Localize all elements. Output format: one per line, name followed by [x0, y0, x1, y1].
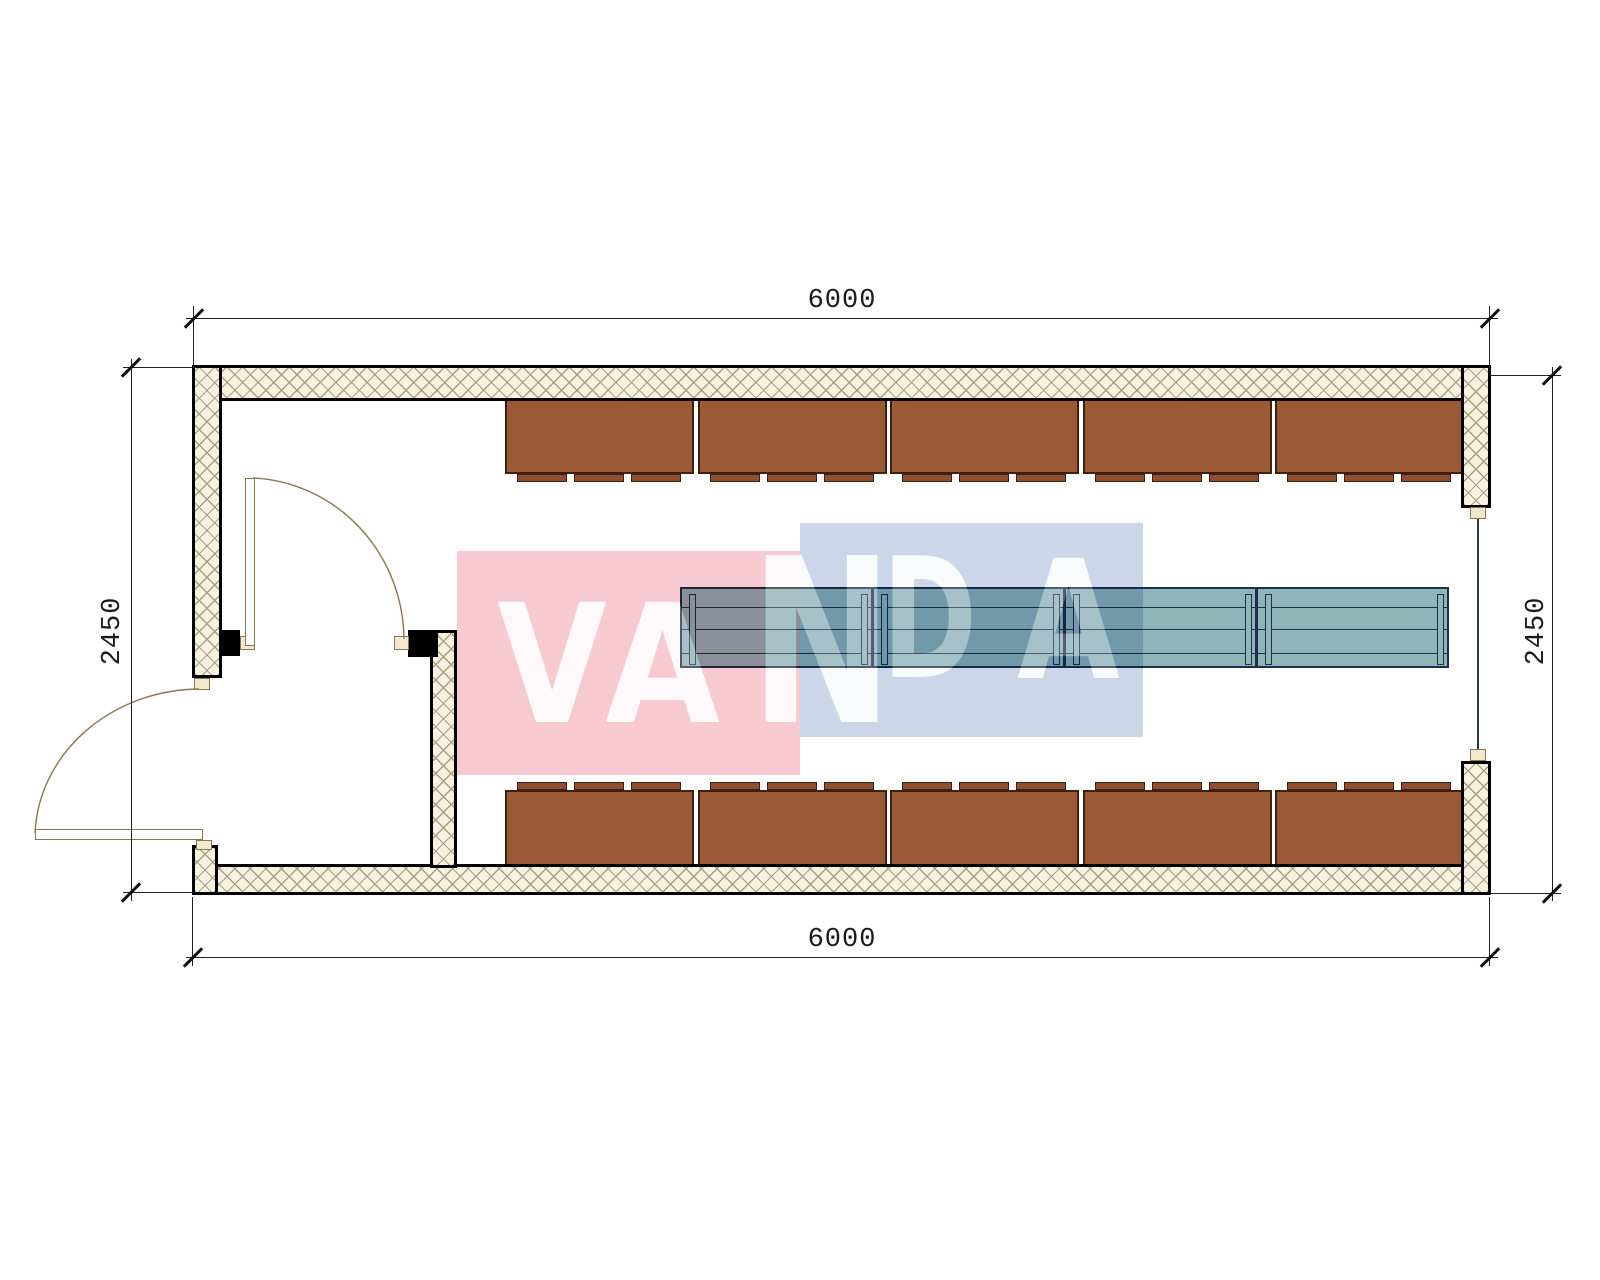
table-leg-slat	[1265, 594, 1272, 665]
table-plank-line	[1066, 629, 1255, 630]
cabinet-top-front	[824, 474, 874, 482]
floor-plan-canvas: V A N D A V A N D A 60	[0, 0, 1600, 1280]
table-plank-line	[1066, 607, 1255, 608]
table-leg-slat	[1053, 594, 1060, 665]
cabinet-bottom-front	[1152, 782, 1202, 790]
cabinet-bottom	[505, 790, 694, 868]
cabinet-top	[505, 399, 694, 474]
cabinet-bottom-front	[824, 782, 874, 790]
window-glazing-line	[1477, 519, 1479, 750]
dim-value-bottom: 6000	[780, 925, 904, 955]
table-plank-line	[874, 607, 1063, 608]
table-plank-line	[682, 629, 871, 630]
wall-partition	[430, 630, 457, 868]
cabinet-top-front	[959, 474, 1009, 482]
interior-door-leaf	[245, 478, 255, 646]
dim-line-top	[186, 318, 1498, 319]
cabinet-bottom-front	[1401, 782, 1451, 790]
cabinet-top-front	[517, 474, 567, 482]
cabinet-top-front	[710, 474, 760, 482]
cabinet-top-front	[1016, 474, 1066, 482]
cabinet-bottom-front	[517, 782, 567, 790]
cabinet-top	[698, 399, 887, 474]
wall-left-corner-block	[192, 845, 218, 895]
wall-top	[192, 365, 1491, 401]
dim-line-bottom	[186, 957, 1498, 958]
wall-bottom	[192, 864, 1491, 895]
table-leg-slat	[881, 594, 888, 665]
wall-partition-doorstop	[408, 630, 438, 657]
cabinet-bottom	[1083, 790, 1272, 868]
cabinet-top-front	[1287, 474, 1337, 482]
cabinet-bottom-front	[1095, 782, 1145, 790]
table-leg-slat	[1073, 594, 1080, 665]
cabinet-bottom-front	[1209, 782, 1259, 790]
cabinet-bottom-front	[1344, 782, 1394, 790]
cabinet-top-front	[1344, 474, 1394, 482]
entry-door-jamb-bottom	[196, 840, 212, 850]
cabinet-top-front	[1401, 474, 1451, 482]
cabinet-bottom-front	[1016, 782, 1066, 790]
wall-right-upper	[1461, 365, 1491, 508]
cabinet-bottom-front	[902, 782, 952, 790]
cabinet-bottom	[890, 790, 1079, 868]
dim-value-right: 2450	[1522, 569, 1552, 693]
table-plank-line	[682, 607, 871, 608]
cabinet-top-front	[631, 474, 681, 482]
cabinet-bottom-front	[959, 782, 1009, 790]
interior-door-jamb-strike	[394, 636, 409, 650]
cabinet-top-front	[1095, 474, 1145, 482]
cabinet-top	[1083, 399, 1272, 474]
dim-line-left	[131, 359, 132, 901]
table-plank-line	[874, 629, 1063, 630]
table-leg-slat	[689, 594, 696, 665]
table-plank-line	[874, 653, 1063, 654]
cabinet-top-front	[1152, 474, 1202, 482]
cabinet-top-front	[767, 474, 817, 482]
table-section	[1064, 587, 1257, 668]
wall-left-upper	[192, 365, 222, 678]
dim-ext-left-bottom	[123, 892, 196, 893]
cabinet-bottom-front	[767, 782, 817, 790]
table-section	[1256, 587, 1449, 668]
window-jamb-bottom	[1470, 749, 1486, 761]
entry-door-jamb-top	[194, 678, 210, 690]
cabinet-bottom-front	[631, 782, 681, 790]
table-leg-slat	[1245, 594, 1252, 665]
table-leg-slat	[1437, 594, 1444, 665]
cabinet-top-front	[574, 474, 624, 482]
table-plank-line	[682, 653, 871, 654]
window-jamb-top	[1470, 507, 1486, 519]
table-section	[872, 587, 1065, 668]
cabinet-top-front	[902, 474, 952, 482]
table-section	[680, 587, 873, 668]
cabinet-bottom-front	[574, 782, 624, 790]
dim-value-left: 2450	[98, 569, 128, 693]
cabinet-top	[890, 399, 1079, 474]
cabinet-bottom	[1275, 790, 1464, 868]
table-plank-line	[1066, 653, 1255, 654]
entry-door-leaf	[35, 829, 203, 840]
cabinet-bottom-front	[710, 782, 760, 790]
table-plank-line	[1258, 653, 1447, 654]
wall-right-lower	[1461, 761, 1491, 895]
table-leg-slat	[861, 594, 868, 665]
dim-ext-left-top	[123, 367, 196, 368]
dim-value-top: 6000	[780, 286, 904, 316]
cabinet-top-front	[1209, 474, 1259, 482]
table-plank-line	[1258, 607, 1447, 608]
cabinet-bottom-front	[1287, 782, 1337, 790]
table-plank-line	[1258, 629, 1447, 630]
cabinet-bottom	[698, 790, 887, 868]
wall-left-doorstop	[219, 630, 240, 656]
dim-line-right	[1552, 367, 1553, 901]
cabinet-top	[1275, 399, 1464, 474]
